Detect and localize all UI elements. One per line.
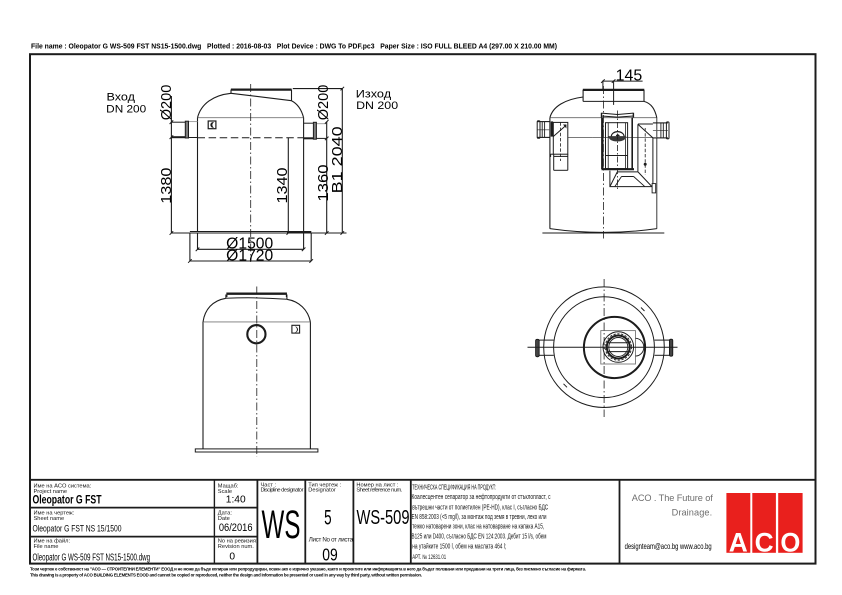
svg-text:Oleopator G FST NS 15/1500: Oleopator G FST NS 15/1500 (33, 523, 122, 534)
svg-text:WS: WS (262, 503, 301, 547)
svg-text:File name : Oleopator G WS-509: File name : Oleopator G WS-509 FST NS15-… (31, 42, 558, 51)
svg-text:This drawing is a property of: This drawing is a property of ACO BUILDI… (30, 573, 422, 578)
svg-text:АРТ. № 12631.01: АРТ. № 12631.01 (412, 554, 446, 561)
svg-text:1380: 1380 (158, 168, 175, 204)
svg-text:5: 5 (324, 507, 332, 530)
svg-text:на утайките 1500 l, обем на ма: на утайките 1500 l, обем на маслата 464 … (412, 541, 506, 550)
svg-text:C: C (755, 528, 774, 558)
svg-text:Изход: Изход (356, 89, 392, 101)
svg-text:тежко натоварени зони, клас на: тежко натоварени зони, клас на натоварва… (412, 522, 544, 531)
svg-text:Drainage.: Drainage. (672, 507, 713, 517)
svg-text:06/2016: 06/2016 (219, 522, 253, 534)
svg-text:Oleopator G FST: Oleopator G FST (33, 492, 103, 506)
svg-text:1340: 1340 (274, 168, 291, 204)
svg-text:1:40: 1:40 (226, 495, 246, 506)
svg-text:Ø200: Ø200 (158, 85, 175, 121)
svg-text:DN 200: DN 200 (356, 100, 398, 112)
svg-text:A: A (729, 528, 748, 558)
svg-text:B1 2040: B1 2040 (329, 126, 346, 193)
svg-text:0: 0 (229, 551, 235, 562)
svg-text:File name: File name (34, 544, 59, 550)
svg-text:145: 145 (616, 67, 643, 84)
svg-text:ACO . The Future of: ACO . The Future of (632, 493, 713, 503)
svg-text:Коалесцентен сепаратор за нефт: Коалесцентен сепаратор за нефтопродукти … (412, 492, 551, 501)
svg-text:Revision num.: Revision num. (218, 544, 254, 550)
svg-text:Вход: Вход (107, 91, 136, 103)
svg-text:designteam@aco.bg www.aco.bg: designteam@aco.bg www.aco.bg (625, 541, 712, 551)
svg-text:Oleopator G WS-509 FST NS15-15: Oleopator G WS-509 FST NS15-1500.dwg (33, 553, 151, 564)
svg-text:Discipline designator: Discipline designator (261, 488, 304, 494)
svg-text:Лист No от листа:: Лист No от листа: (309, 536, 355, 543)
svg-text:09: 09 (322, 545, 338, 565)
svg-text:ТЕХНИЧЕСКА СПЕЦИФИКАЦИЯ НА ПРО: ТЕХНИЧЕСКА СПЕЦИФИКАЦИЯ НА ПРОДУКТ: (412, 483, 496, 492)
svg-text:O: O (780, 528, 800, 558)
svg-text:Ø200: Ø200 (315, 85, 332, 121)
svg-text:WS-509: WS-509 (357, 507, 410, 529)
svg-text:DN 200: DN 200 (106, 103, 146, 115)
svg-text:Sheet reference num.: Sheet reference num. (356, 488, 402, 494)
svg-text:Този чертеж е собственост на ": Този чертеж е собственост на "АСО — СТРО… (30, 567, 586, 572)
svg-text:EN 858:2003 (<5 mg/l), за монт: EN 858:2003 (<5 mg/l), за монтаж под зем… (412, 512, 547, 521)
svg-text:Ø1720: Ø1720 (226, 247, 273, 264)
svg-text:Designator: Designator (308, 488, 336, 494)
svg-text:вътрешни части от полиетилен (: вътрешни части от полиетилен (PE-HD), кл… (412, 502, 548, 511)
svg-text:Sheet name: Sheet name (34, 516, 65, 522)
svg-text:B125 или D400, съгласно БДС EN: B125 или D400, съгласно БДС EN 124:2003.… (412, 531, 547, 540)
